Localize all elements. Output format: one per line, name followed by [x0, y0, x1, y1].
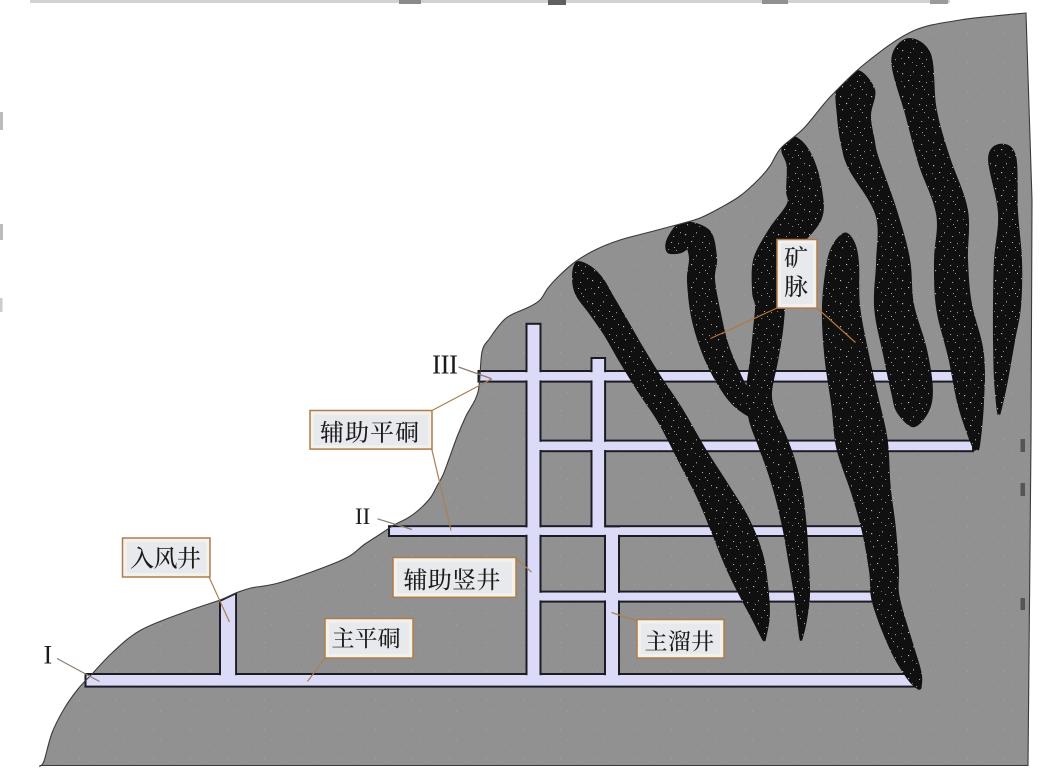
svg-text:III: III — [432, 350, 458, 380]
svg-text:I: I — [44, 641, 53, 670]
svg-text:II: II — [355, 504, 370, 529]
